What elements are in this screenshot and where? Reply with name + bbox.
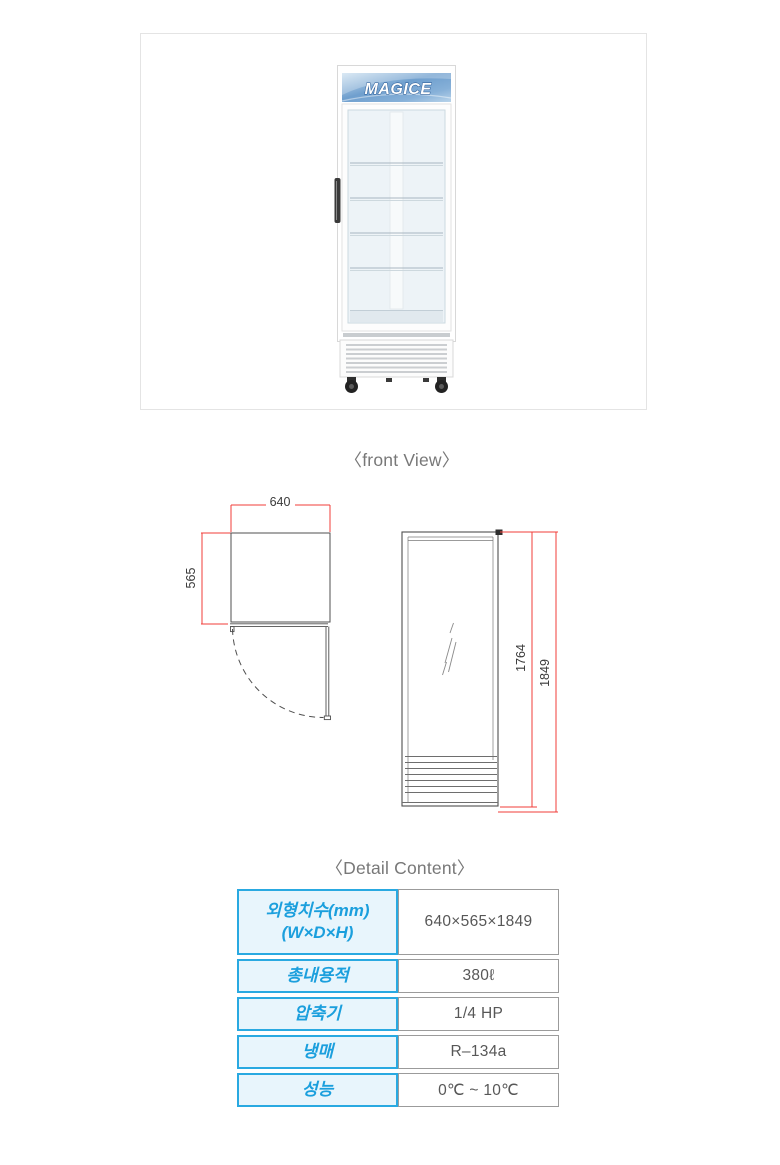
fridge-glass-door — [335, 104, 452, 331]
spec-value-refrigerant: R–134a — [398, 1035, 559, 1069]
side-view-inner-height-label: 1764 — [514, 644, 528, 672]
spec-label-performance: 성능 — [237, 1073, 398, 1107]
brand-logo-text: MAGICE — [365, 81, 433, 98]
front-view-heading: 〈front View〉 — [0, 447, 780, 472]
depth-dimension — [201, 533, 231, 624]
top-view-drawing: 640 565 — [184, 494, 331, 720]
spec-label-dimensions: 외형치수(mm) (W×D×H) — [237, 889, 398, 955]
table-row: 총내용적 380ℓ — [237, 959, 559, 993]
table-row: 냉매 R–134a — [237, 1035, 559, 1069]
spec-label-compressor: 압축기 — [237, 997, 398, 1031]
table-row: 성능 0℃ ~ 10℃ — [237, 1073, 559, 1107]
showcase-fridge-image: MAGICE — [337, 65, 456, 395]
door-swing-arc — [233, 629, 324, 718]
top-view-depth-label: 565 — [184, 568, 198, 589]
table-row: 압축기 1/4 HP — [237, 997, 559, 1031]
spec-value-compressor: 1/4 HP — [398, 997, 559, 1031]
top-view-width-label: 640 — [270, 495, 291, 509]
door-open-lines — [324, 627, 330, 720]
side-view-drawing: 1764 1849 — [402, 530, 558, 813]
spec-label-line1: 외형치수(mm) — [265, 900, 369, 922]
spec-value-capacity: 380ℓ — [398, 959, 559, 993]
spec-value-performance: 0℃ ~ 10℃ — [398, 1073, 559, 1107]
fridge-header-panel: MAGICE — [342, 73, 451, 102]
spec-label-refrigerant: 냉매 — [237, 1035, 398, 1069]
caster-wheels — [345, 377, 448, 393]
product-detail-page: MAGICE — [0, 0, 780, 1165]
fridge-base-grille — [340, 333, 453, 377]
width-dimension — [231, 505, 330, 532]
spec-value-dimensions: 640×565×1849 — [398, 889, 559, 955]
dimension-drawings: 640 565 — [180, 488, 580, 833]
spec-label-capacity: 총내용적 — [237, 959, 398, 993]
table-row: 외형치수(mm) (W×D×H) 640×565×1849 — [237, 889, 559, 955]
interior-duct — [390, 112, 403, 309]
spec-label-line2: (W×D×H) — [282, 922, 354, 944]
product-photo-box: MAGICE — [140, 33, 647, 410]
detail-content-heading: 〈Detail Content〉 — [0, 855, 780, 880]
side-view-total-height-label: 1849 — [538, 659, 552, 687]
door-handle — [335, 178, 341, 223]
spec-table: 외형치수(mm) (W×D×H) 640×565×1849 총내용적 380ℓ … — [237, 889, 559, 1111]
door-closed-lines — [230, 624, 328, 632]
